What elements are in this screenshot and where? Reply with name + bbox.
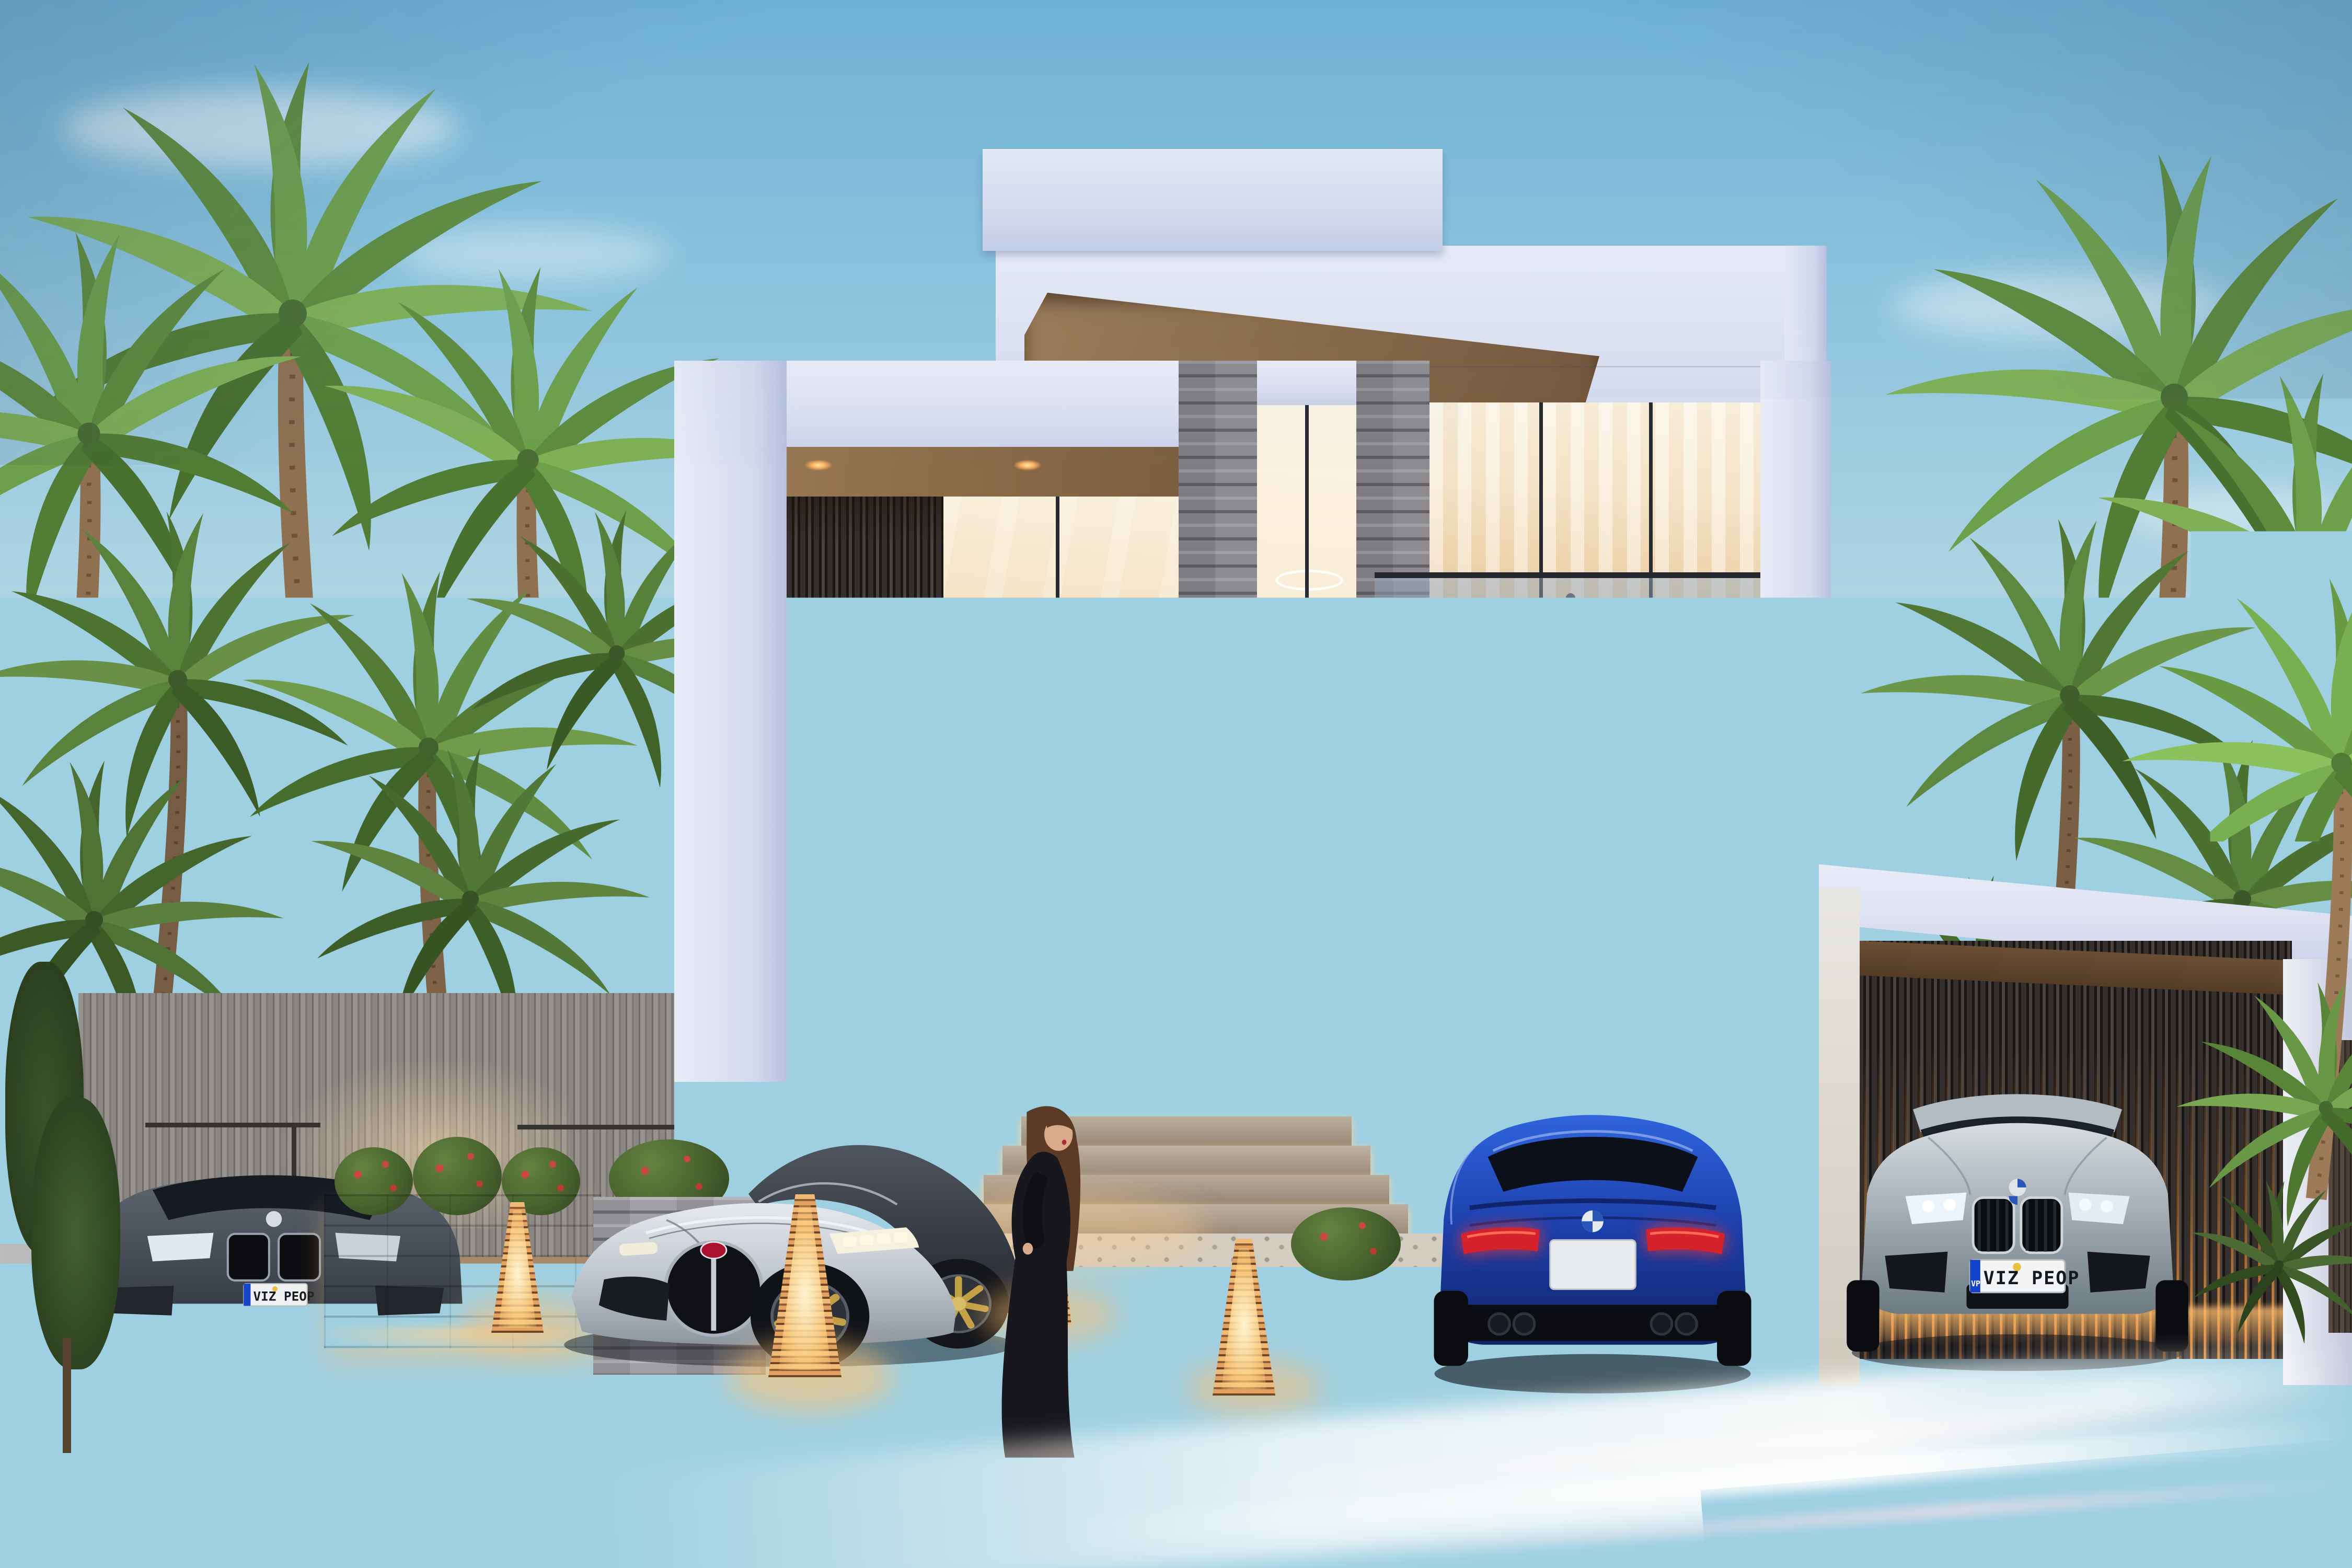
- palm-crown: [2188, 1180, 2352, 1344]
- palm-crown: [1721, 832, 1931, 1012]
- scene-stage: VIZ PEOP: [0, 0, 2352, 1568]
- foreground-palms: [0, 0, 2352, 1568]
